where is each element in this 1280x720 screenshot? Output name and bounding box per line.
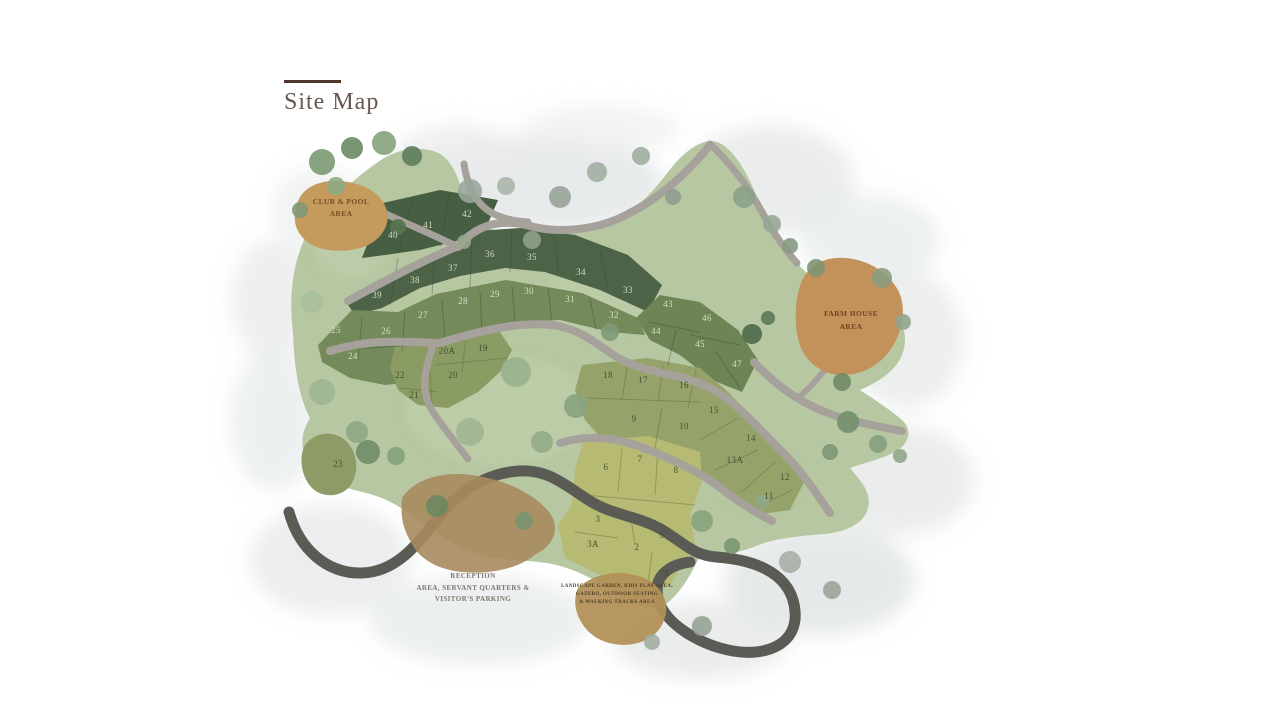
plot-label-6: 6 — [604, 462, 609, 472]
plot-label-40: 40 — [388, 230, 398, 240]
amenities-label-line3: & WALKING TRACKS AREA — [579, 600, 655, 605]
reception-label-line3: VISITOR'S PARKING — [435, 595, 512, 603]
plot-label-13A: 13A — [727, 455, 744, 465]
amenities-label-line1: LANDSCAPE GARDEN, KIDS PLAY AREA, — [561, 584, 673, 589]
plot-label-11: 11 — [764, 491, 773, 501]
plot-label-12: 12 — [780, 472, 790, 482]
plot-label-35: 35 — [527, 252, 537, 262]
plot-label-15: 15 — [709, 405, 719, 415]
plot-label-30: 30 — [524, 286, 534, 296]
site-map-canvas: CLUB & POOL AREA FARM HOUSE AREA RECEPTI… — [0, 0, 1280, 720]
plot-label-19: 19 — [478, 343, 488, 353]
plot-label-32: 32 — [609, 310, 619, 320]
plot-label-3: 3 — [596, 514, 601, 524]
amenities-label-line2: GAZEBO, OUTDOOR SEATING — [576, 592, 658, 597]
plot-label-16: 16 — [679, 380, 689, 390]
plot-label-5: 5 — [660, 530, 665, 540]
plot-label-18: 18 — [603, 370, 613, 380]
plot-label-14: 14 — [746, 433, 756, 443]
plot-label-39: 39 — [372, 290, 382, 300]
reception-label-line1: RECEPTION — [450, 572, 495, 580]
plot-label-42: 42 — [462, 209, 472, 219]
plot-label-46: 46 — [702, 313, 712, 323]
plot-label-31: 31 — [565, 294, 575, 304]
plot-label-20: 20 — [448, 370, 458, 380]
plot-label-36: 36 — [485, 249, 495, 259]
club-pool-label-line1: CLUB & POOL — [313, 197, 370, 206]
reception-label-line2: AREA, SERVANT QUARTERS & — [416, 584, 529, 592]
plot-label-3A: 3A — [587, 539, 599, 549]
plot-label-7: 7 — [638, 454, 643, 464]
plot-label-24: 24 — [348, 351, 358, 361]
plot-label-17: 17 — [638, 375, 648, 385]
plot-label-45: 45 — [695, 339, 705, 349]
plot-label-29: 29 — [490, 289, 500, 299]
plot-label-10: 10 — [679, 421, 689, 431]
plot-label-38: 38 — [410, 275, 420, 285]
farm-house-label-line2: AREA — [840, 322, 863, 331]
farm-house-label-line1: FARM HOUSE — [824, 309, 878, 318]
plot-label-33: 33 — [623, 285, 633, 295]
plot-label-9: 9 — [632, 414, 637, 424]
plot-label-47: 47 — [732, 359, 742, 369]
plot-label-20A: 20A — [439, 346, 456, 356]
plot-label-26: 26 — [381, 326, 391, 336]
plot-label-21: 21 — [409, 390, 419, 400]
plot-label-1: 1 — [665, 568, 670, 578]
plot-label-22: 22 — [395, 370, 405, 380]
plot-label-41: 41 — [423, 220, 433, 230]
plot-label-23: 23 — [333, 459, 343, 469]
plot-label-37: 37 — [448, 263, 458, 273]
club-pool-label-line2: AREA — [330, 209, 353, 218]
plot-label-34: 34 — [576, 267, 586, 277]
plot-label-44: 44 — [651, 326, 661, 336]
plot-label-28: 28 — [458, 296, 468, 306]
plot-label-43: 43 — [663, 299, 673, 309]
site-map-page: Site Map — [0, 0, 1280, 720]
plot-label-27: 27 — [418, 310, 428, 320]
plot-label-2: 2 — [635, 542, 640, 552]
plot-label-25: 25 — [331, 325, 341, 335]
plot-label-8: 8 — [674, 465, 679, 475]
